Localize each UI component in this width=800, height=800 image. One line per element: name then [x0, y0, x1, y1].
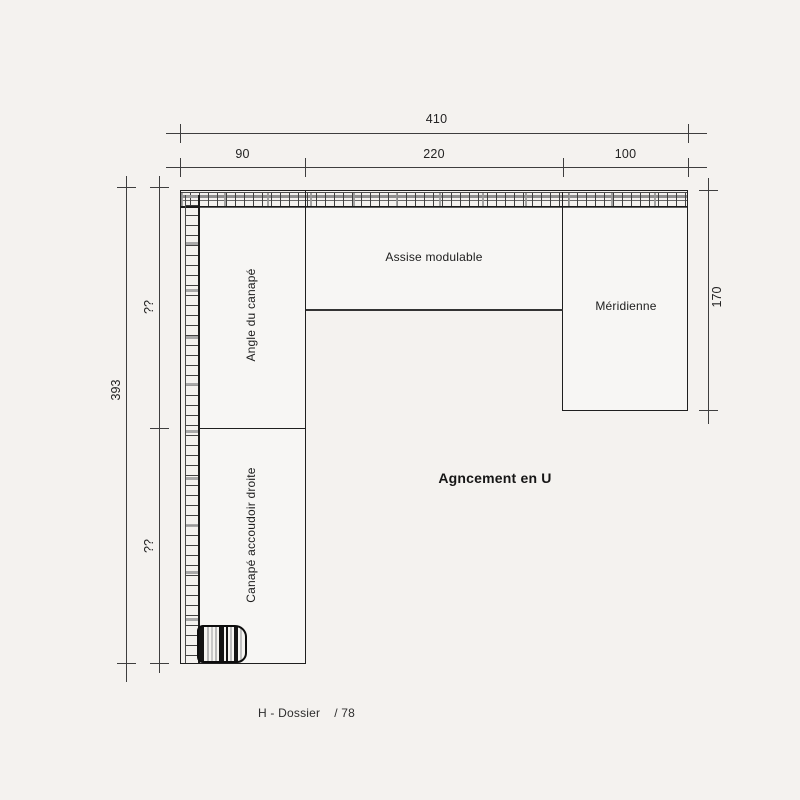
- plan-outline-right: [687, 190, 688, 411]
- drawing-title: Agncement en U: [395, 470, 595, 486]
- floorplan-canvas: 410 90 220 100 393 ?? ?? 170 Angle du ca…: [0, 0, 800, 800]
- dim-tick: [180, 124, 181, 143]
- dim-tick: [117, 187, 136, 188]
- module-assise-label: Assise modulable: [334, 250, 534, 264]
- dim-tick: [150, 428, 169, 429]
- dim-tick: [699, 410, 718, 411]
- plan-outline-top: [180, 190, 688, 191]
- caption-page-number: / 78: [334, 706, 355, 720]
- partition-meridienne-bottom: [562, 410, 688, 411]
- dim-tick: [688, 158, 689, 177]
- dim-height-segment-bottom-label: ??: [141, 525, 157, 567]
- dim-line-width-segments: [166, 167, 707, 168]
- module-angle-label: Angle du canapé: [243, 245, 259, 385]
- partition-angle-accoudoir: [199, 428, 306, 429]
- dim-tick: [699, 190, 718, 191]
- partition-meridienne-left-edge: [562, 192, 563, 411]
- dim-line-total-width: [166, 133, 707, 134]
- partition-assise-bottom: [306, 309, 563, 311]
- module-accoudoir-label: Canapé accoudoir droite: [243, 450, 259, 620]
- dim-height-segment-top-label: ??: [141, 286, 157, 328]
- dim-tick: [117, 663, 136, 664]
- plan-outline-bottom: [180, 663, 306, 664]
- dim-segment-90-label: 90: [180, 147, 305, 161]
- caption: H - Dossier / 78: [258, 706, 355, 720]
- caption-dossier: H - Dossier: [258, 706, 320, 720]
- dim-segment-100-label: 100: [563, 147, 688, 161]
- partition-left-column-right-edge: [305, 190, 306, 664]
- dim-line-total-height: [126, 176, 127, 682]
- dim-segment-220-label: 220: [305, 147, 563, 161]
- backrest-hatch-top: [181, 192, 688, 208]
- plan-outline-left: [180, 190, 181, 664]
- dim-tick: [688, 124, 689, 143]
- dim-tick: [150, 187, 169, 188]
- dim-total-height-label: 393: [108, 369, 124, 411]
- backrest-hatch-left: [185, 195, 200, 663]
- dim-total-width-label: 410: [166, 112, 707, 126]
- dim-meridienne-height-label: 170: [709, 276, 725, 318]
- module-meridienne-label: Méridienne: [565, 299, 687, 313]
- armrest-roll: [197, 625, 247, 663]
- dim-tick: [150, 663, 169, 664]
- dim-line-height-segments: [159, 176, 160, 673]
